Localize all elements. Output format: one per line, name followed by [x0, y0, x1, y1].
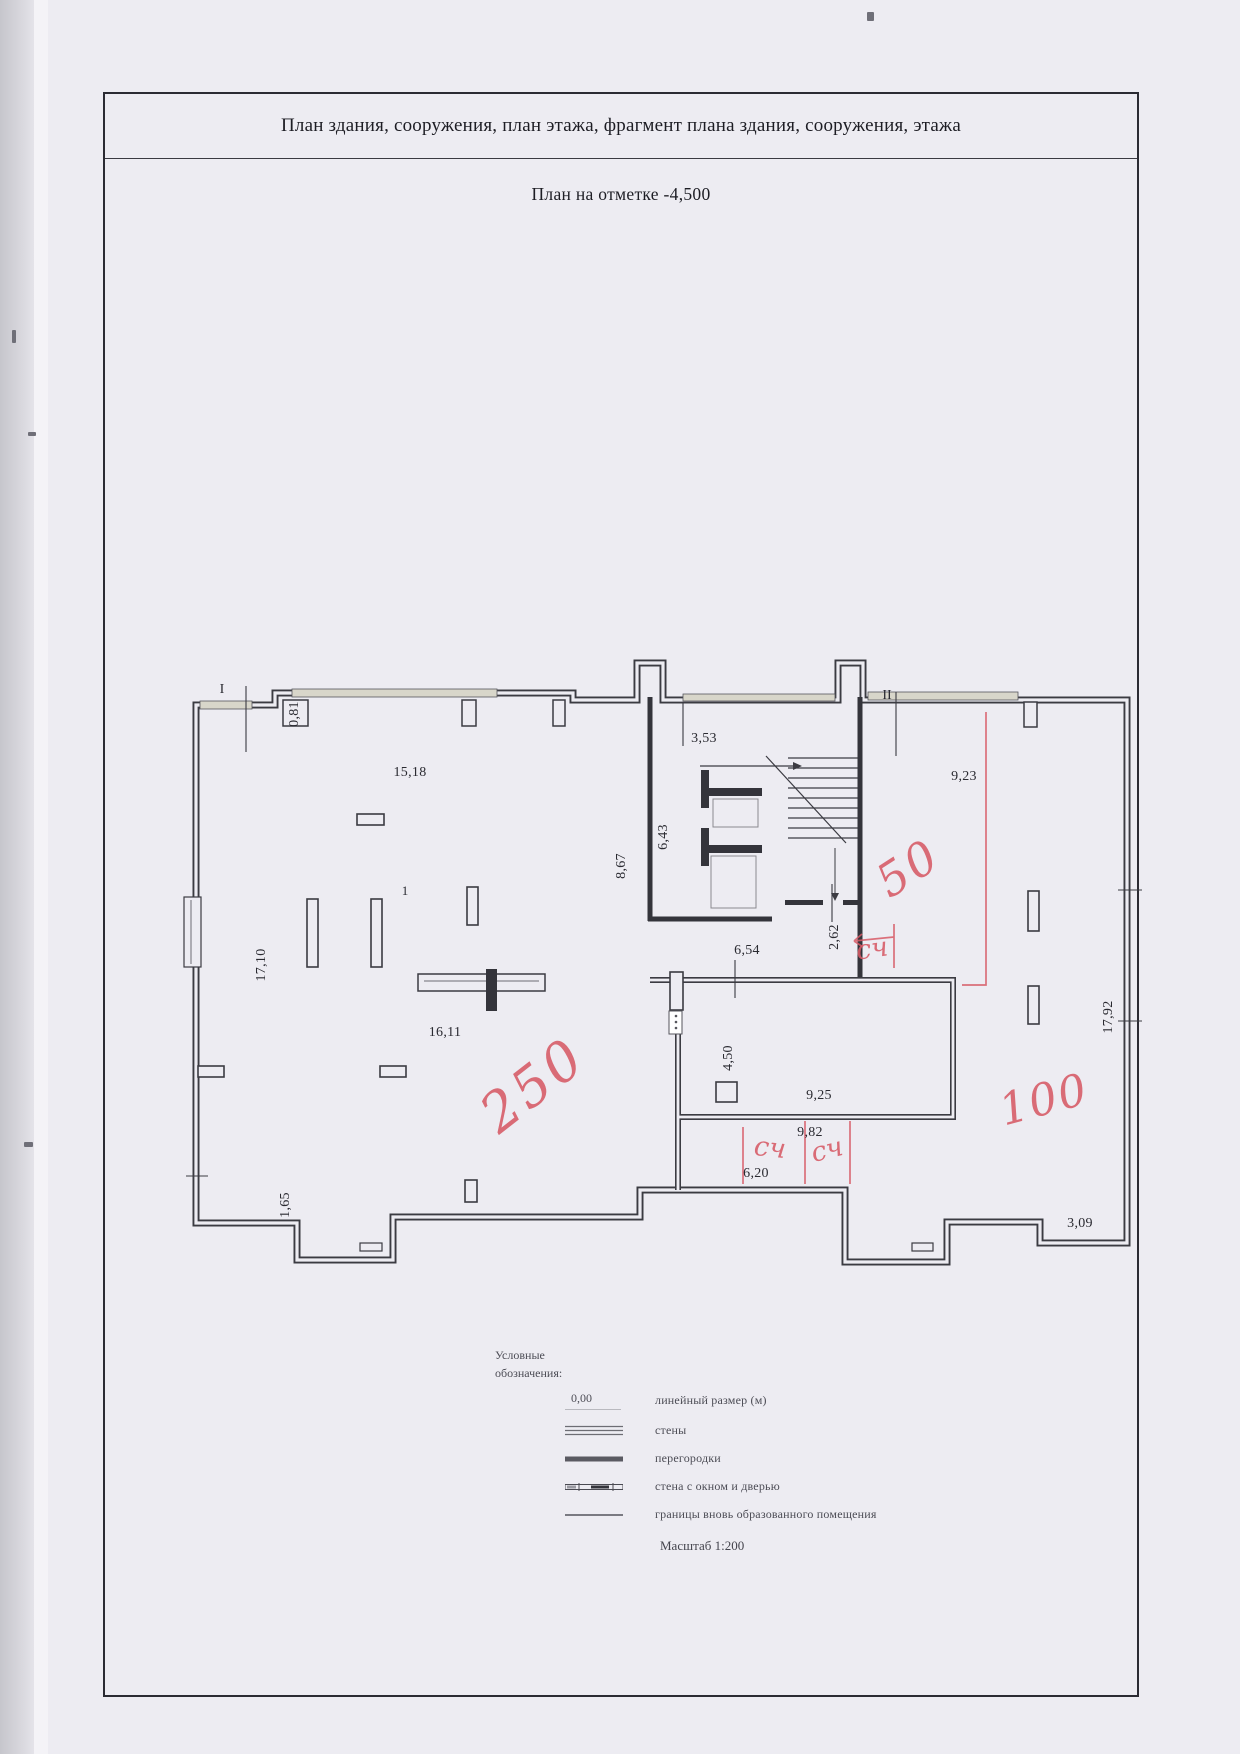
lower-room-walls — [650, 980, 953, 1190]
dimension-label: 9,23 — [951, 769, 977, 785]
legend-item-label: перегородки — [655, 1451, 721, 1466]
legend-item-partitions: перегородки — [495, 1451, 1115, 1466]
partitions-symbol — [495, 1454, 655, 1464]
stair-direction-arrow — [793, 762, 802, 770]
new-room-boundary-symbol — [495, 1511, 655, 1519]
dimension-label: 8,67 — [614, 853, 630, 879]
dimension-label: 17,10 — [254, 949, 270, 982]
top-wall-pilasters — [283, 700, 1037, 727]
dimension-label: 1,65 — [278, 1192, 294, 1218]
dimension-label: 6,43 — [656, 824, 672, 850]
dimension-label: 17,92 — [1101, 1001, 1117, 1034]
left-wall-bay — [184, 897, 201, 967]
dimension-label: 15,18 — [394, 765, 427, 781]
dimension-label: 6,54 — [734, 943, 760, 959]
legend-item-new-room-boundary: границы вновь образованного помещения — [495, 1507, 1115, 1522]
red-annotation-sch: сч — [753, 1131, 788, 1165]
red-annotation-sch: сч — [854, 931, 890, 966]
low-partition-structure — [418, 969, 545, 1011]
dimension-label: 16,11 — [429, 1025, 461, 1041]
room-number-label: 1 — [402, 883, 409, 899]
dimension-label: 0,81 — [287, 701, 303, 727]
staircase — [700, 756, 858, 908]
outer-walls — [196, 663, 1127, 1262]
legend-item-label: стена с окном и дверью — [655, 1479, 780, 1494]
legend: Условные обозначения: 0,00 линейный разм… — [495, 1346, 1115, 1554]
section-marker-2: II — [882, 688, 891, 704]
wall-equipment-box — [669, 1011, 682, 1034]
dimension-label: 2,62 — [827, 924, 843, 950]
scanned-floor-plan-page: План здания, сооружения, план этажа, фра… — [0, 0, 1240, 1754]
scale-note: Масштаб 1:200 — [495, 1538, 1115, 1554]
linear-dimension-symbol: 0,00 — [495, 1391, 655, 1410]
section-marker-1: I — [220, 682, 225, 698]
dimension-label: 3,53 — [691, 731, 717, 747]
legend-sample-value: 0,00 — [565, 1391, 592, 1406]
wall-window-door-symbol — [495, 1481, 655, 1493]
dimension-label: 3,09 — [1067, 1216, 1093, 1232]
legend-item-label: линейный размер (м) — [655, 1393, 767, 1408]
legend-item-wall-window-door: стена с окном и дверью — [495, 1479, 1115, 1494]
legend-heading: Условные обозначения: — [495, 1346, 615, 1382]
dimension-label: 9,25 — [806, 1088, 832, 1104]
legend-item-linear-dimension: 0,00 линейный размер (м) — [495, 1391, 1115, 1410]
dimension-label: 6,20 — [743, 1166, 769, 1182]
dimension-label: 4,50 — [721, 1045, 737, 1071]
legend-item-walls: стены — [495, 1423, 1115, 1438]
legend-item-label: стены — [655, 1423, 686, 1438]
legend-item-label: границы вновь образованного помещения — [655, 1507, 877, 1522]
walls-symbol — [495, 1424, 655, 1437]
